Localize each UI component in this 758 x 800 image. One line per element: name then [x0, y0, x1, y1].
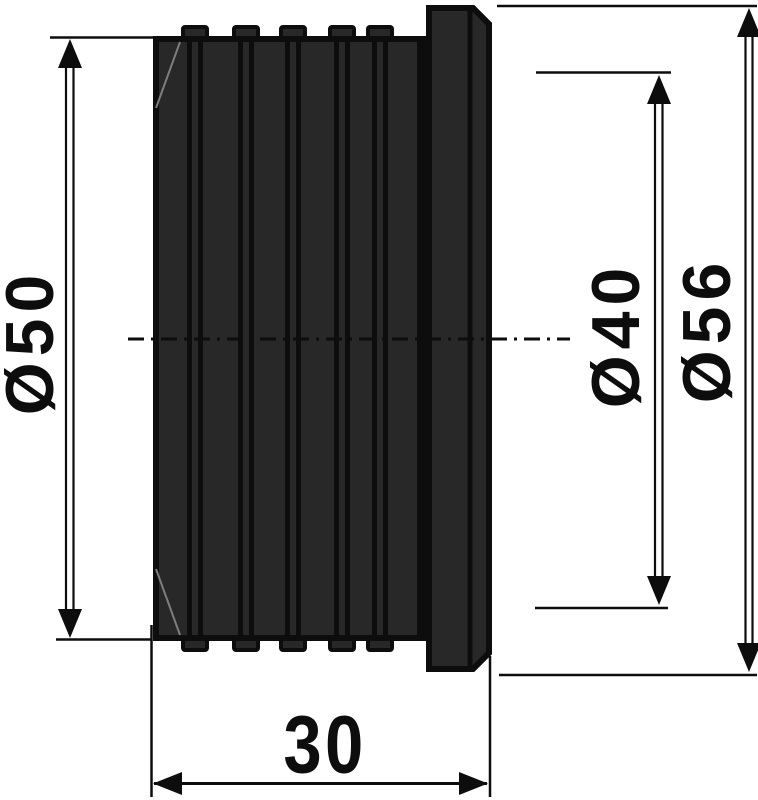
drawing-canvas: Ø50 Ø40 Ø56 30 — [0, 0, 758, 800]
arrow-down-icon — [737, 643, 758, 672]
arrow-up-icon — [58, 39, 82, 68]
rib-line — [187, 39, 192, 638]
arrow-down-icon — [58, 609, 82, 638]
technical-drawing: Ø50 Ø40 Ø56 30 — [0, 0, 758, 800]
dim-label-diameter-flange: Ø56 — [669, 257, 745, 404]
arrow-left-icon — [153, 772, 182, 795]
dim-label-length: 30 — [283, 699, 366, 791]
arrow-down-icon — [647, 576, 671, 605]
arrow-up-icon — [647, 75, 671, 104]
arrow-up-icon — [737, 8, 758, 37]
dim-label-diameter-body: Ø50 — [0, 269, 68, 416]
dim-diameter-inner: Ø40 — [535, 73, 671, 609]
arrow-right-icon — [459, 772, 488, 795]
dim-label-diameter-inner: Ø40 — [578, 262, 654, 409]
